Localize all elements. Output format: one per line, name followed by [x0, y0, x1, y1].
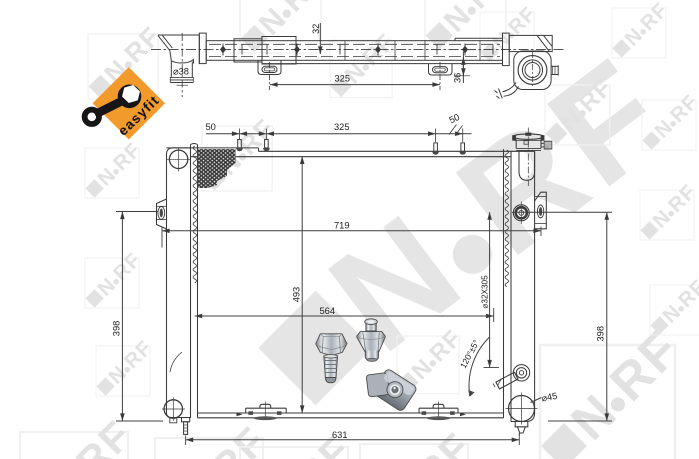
- svg-text:398: 398: [112, 321, 122, 337]
- svg-text:398: 398: [596, 326, 606, 342]
- svg-text:32: 32: [311, 24, 321, 34]
- svg-text:36: 36: [452, 73, 462, 83]
- svg-text:719: 719: [334, 220, 350, 230]
- svg-text:50: 50: [206, 122, 216, 132]
- svg-text:⌀32X305: ⌀32X305: [481, 275, 490, 309]
- svg-text:325: 325: [334, 122, 350, 132]
- svg-text:564: 564: [320, 306, 336, 316]
- svg-text:⌀38: ⌀38: [173, 67, 189, 77]
- svg-text:325: 325: [335, 74, 351, 84]
- svg-text:631: 631: [332, 430, 348, 440]
- svg-text:493: 493: [292, 287, 302, 303]
